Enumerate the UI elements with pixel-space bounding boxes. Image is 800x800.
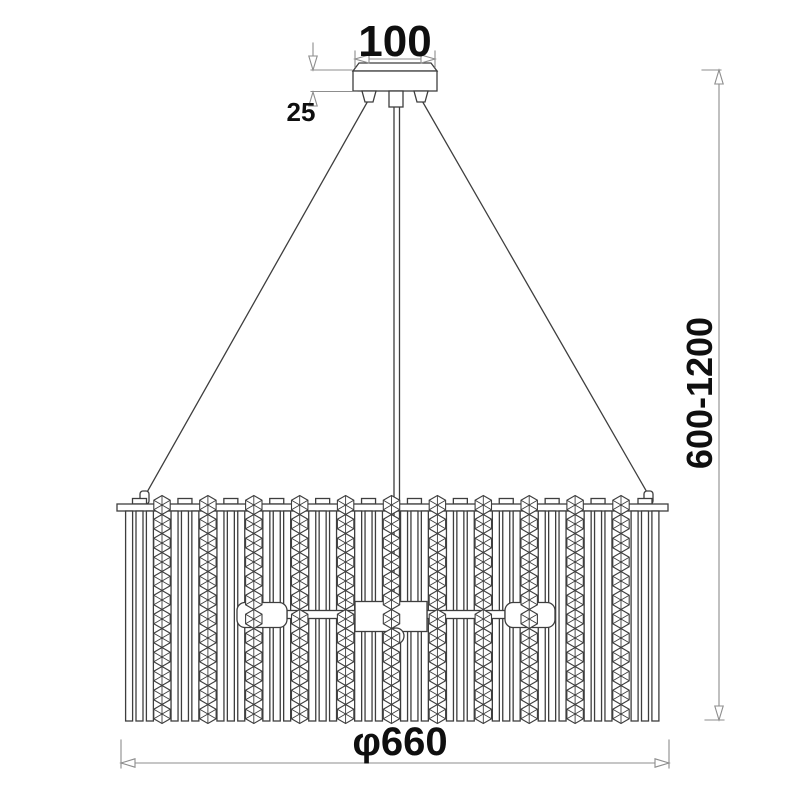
crystal-strand [567, 496, 583, 724]
diameter-label: φ660 [352, 720, 447, 764]
right-cable [421, 99, 648, 494]
ring-clip [224, 499, 238, 505]
arrow-left [121, 759, 135, 767]
dimension-canopy-height: 25 [287, 43, 357, 127]
ring-clip [270, 499, 284, 505]
hanging-rod [642, 511, 649, 721]
crystal-strand [154, 496, 170, 724]
hanging-rod [126, 511, 133, 721]
canopy [353, 63, 437, 107]
canopy-width-label: 100 [358, 17, 431, 66]
canopy-left-nipple [362, 91, 376, 102]
hanging-rod [146, 511, 153, 721]
arrow-right [655, 759, 669, 767]
canopy-height-label: 25 [287, 97, 316, 127]
arrow-down [309, 56, 317, 70]
ring-clip [591, 499, 605, 505]
crystal-strand [613, 496, 629, 724]
hanging-rod [192, 511, 199, 721]
canopy-center-nipple [389, 91, 403, 107]
dimension-suspension-height: 600-1200 [679, 70, 724, 720]
crystal-strand [200, 496, 216, 724]
ring-clip [545, 499, 559, 505]
arrow-down [715, 706, 723, 720]
canopy-right-nipple [414, 91, 428, 102]
hanging-rod [605, 511, 612, 721]
crystal-strand [337, 496, 353, 724]
arrow-up [715, 70, 723, 84]
ring-clip [133, 499, 147, 505]
hanging-rod [595, 511, 602, 721]
hanging-rod [136, 511, 143, 721]
hanging-rod [584, 511, 591, 721]
canopy-body [353, 71, 437, 91]
crystal-strand [429, 496, 445, 724]
crystal-strand [475, 496, 491, 724]
hanging-rod [171, 511, 178, 721]
crystal-strands [154, 496, 629, 724]
ring-clip [499, 499, 513, 505]
ring-clip [638, 499, 652, 505]
chandelier-dimension-drawing: 100 25 600-1200 φ660 [0, 0, 800, 800]
dimension-canopy-width: 100 [355, 17, 435, 67]
hanging-rod [227, 511, 234, 721]
left-cable [146, 99, 369, 494]
dimension-diameter: φ660 [121, 720, 669, 768]
hanging-rod [181, 511, 188, 721]
crystal-strand [292, 496, 308, 724]
ring-clip [362, 499, 376, 505]
drawing-page: 100 25 600-1200 φ660 [0, 0, 800, 800]
ring-clip [178, 499, 192, 505]
hanging-rod [559, 511, 566, 721]
hanging-rod [631, 511, 638, 721]
hanging-rod [652, 511, 659, 721]
ring-clip [316, 499, 330, 505]
hanging-rod [217, 511, 224, 721]
ring-clip [407, 499, 421, 505]
ring-clip [453, 499, 467, 505]
suspension-height-label: 600-1200 [679, 317, 720, 469]
